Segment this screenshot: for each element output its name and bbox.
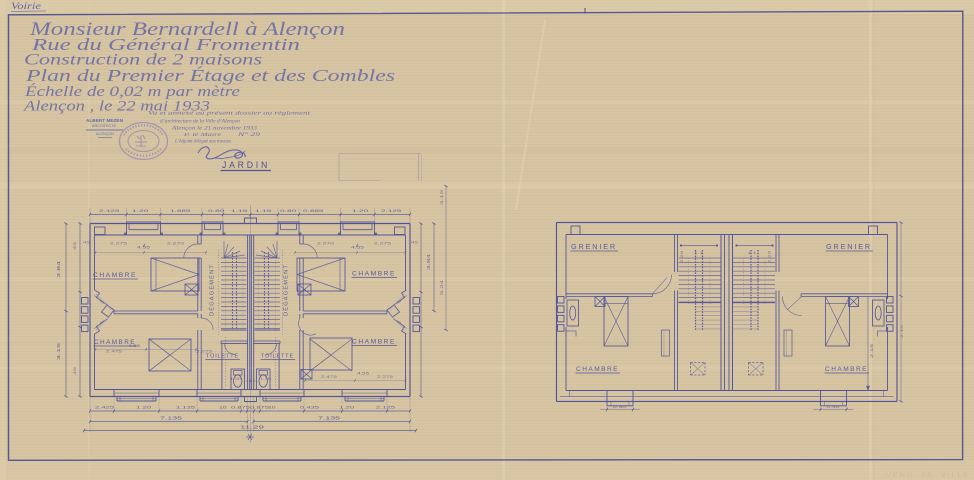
svg-text:4.55: 4.55 bbox=[351, 246, 364, 250]
svg-text:3.84: 3.84 bbox=[426, 253, 431, 270]
svg-text:2.275: 2.275 bbox=[110, 242, 127, 246]
svg-text:3.84: 3.84 bbox=[56, 260, 61, 278]
svg-text:2.475: 2.475 bbox=[321, 375, 337, 379]
svg-text:0.875: 0.875 bbox=[250, 406, 269, 410]
svg-text:3.15: 3.15 bbox=[439, 189, 444, 205]
svg-text:1.20: 1.20 bbox=[136, 406, 151, 410]
svg-text:2.275: 2.275 bbox=[374, 242, 391, 246]
svg-text:2.475: 2.475 bbox=[106, 350, 122, 354]
svg-text:GRENIER: GRENIER bbox=[571, 244, 617, 251]
svg-text:0.80: 0.80 bbox=[280, 208, 298, 213]
svg-text:2.425: 2.425 bbox=[95, 406, 114, 410]
svg-text:CHAMBRE: CHAMBRE bbox=[352, 271, 396, 278]
svg-text:0.885: 0.885 bbox=[303, 208, 325, 213]
svg-text:2.15: 2.15 bbox=[900, 325, 904, 338]
svg-text:3.15: 3.15 bbox=[56, 342, 61, 360]
svg-text:4.55: 4.55 bbox=[357, 372, 369, 376]
svg-text:CHAMBRE: CHAMBRE bbox=[94, 339, 136, 346]
svg-text:2.275: 2.275 bbox=[377, 375, 393, 379]
svg-text:0.80: 0.80 bbox=[208, 208, 226, 213]
svg-text:1.15: 1.15 bbox=[255, 208, 273, 213]
svg-text:CHAMBRE: CHAMBRE bbox=[825, 366, 868, 373]
svg-text:GRENIER: GRENIER bbox=[826, 244, 872, 251]
svg-text:45: 45 bbox=[73, 367, 77, 375]
svg-text:DÉGAGEMENT: DÉGAGEMENT bbox=[283, 264, 290, 316]
svg-text:45: 45 bbox=[250, 379, 256, 383]
svg-text:1.20: 1.20 bbox=[132, 208, 150, 213]
svg-text:1.885: 1.885 bbox=[170, 208, 192, 213]
svg-text:2.270: 2.270 bbox=[317, 242, 334, 246]
svg-text:CHAMBRE: CHAMBRE bbox=[576, 366, 619, 373]
svg-text:1.20: 1.20 bbox=[352, 208, 370, 213]
svg-text:TOILETTE: TOILETTE bbox=[206, 354, 239, 360]
svg-text:2.20: 2.20 bbox=[768, 251, 772, 263]
svg-text:1.30: 1.30 bbox=[260, 377, 271, 381]
svg-text:TOILETTE: TOILETTE bbox=[261, 354, 294, 360]
svg-text:2.15: 2.15 bbox=[869, 343, 874, 358]
svg-text:1.1: 1.1 bbox=[748, 251, 757, 255]
svg-text:1.15: 1.15 bbox=[231, 208, 249, 213]
svg-text:0.875: 0.875 bbox=[231, 406, 250, 410]
svg-text:10: 10 bbox=[219, 406, 227, 410]
svg-text:45: 45 bbox=[411, 241, 418, 245]
svg-text:2.20: 2.20 bbox=[680, 251, 684, 263]
svg-text:DÉGAGEMENT: DÉGAGEMENT bbox=[209, 264, 216, 316]
svg-text:2.125: 2.125 bbox=[381, 208, 403, 213]
svg-text:7.135: 7.135 bbox=[318, 416, 341, 421]
svg-text:10: 10 bbox=[268, 406, 276, 410]
svg-text:0.90: 0.90 bbox=[827, 404, 841, 409]
svg-text:2.125: 2.125 bbox=[376, 406, 395, 410]
svg-text:1.30: 1.30 bbox=[230, 377, 241, 381]
svg-text:5.24: 5.24 bbox=[439, 279, 444, 295]
svg-text:45: 45 bbox=[83, 241, 90, 245]
svg-text:CHAMBRE: CHAMBRE bbox=[93, 272, 137, 279]
svg-text:2.125: 2.125 bbox=[99, 208, 121, 213]
svg-text:VEND. 25. VILLE: VEND. 25. VILLE bbox=[886, 472, 970, 479]
svg-text:2.270: 2.270 bbox=[167, 242, 184, 246]
svg-text:11.29: 11.29 bbox=[240, 425, 265, 430]
svg-text:0.435: 0.435 bbox=[300, 406, 319, 410]
svg-text:1.20: 1.20 bbox=[339, 406, 354, 410]
svg-text:CHAMBRE: CHAMBRE bbox=[352, 339, 396, 346]
svg-text:7.135: 7.135 bbox=[160, 416, 183, 421]
svg-text:45: 45 bbox=[73, 242, 77, 250]
svg-text:0.90: 0.90 bbox=[613, 404, 627, 409]
svg-text:1.135: 1.135 bbox=[176, 406, 195, 410]
